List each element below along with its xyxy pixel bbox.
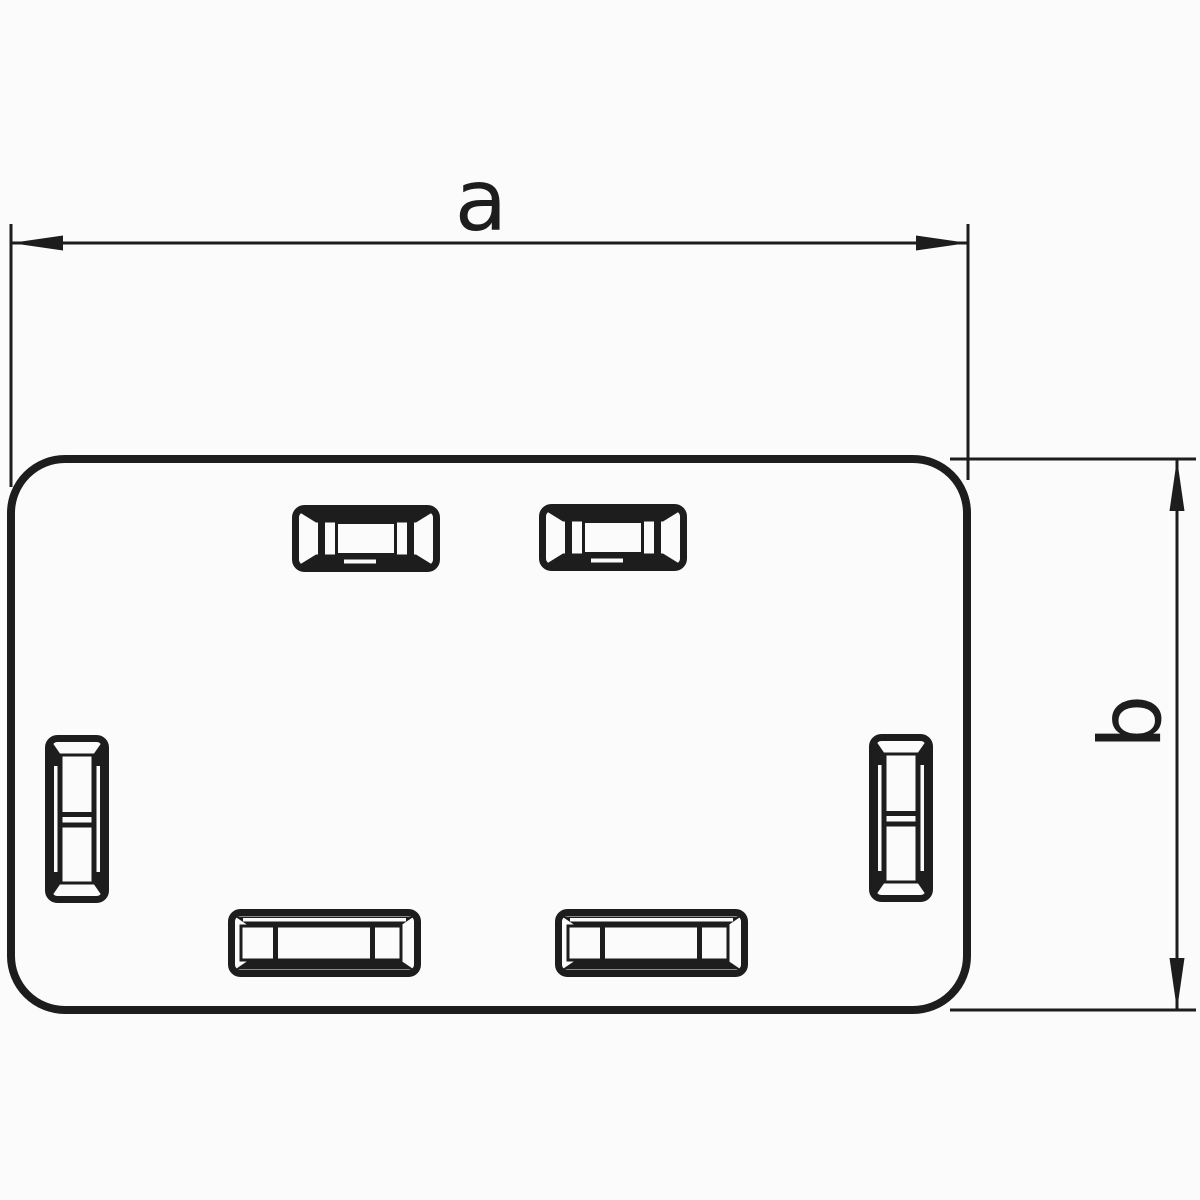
dimension-a-label: a (455, 151, 508, 251)
end-plate-body (11, 459, 967, 1010)
dim-a-arrowhead-right-icon (916, 236, 968, 251)
drawing-page: a b (0, 0, 1200, 1200)
slot-top-right (543, 508, 684, 568)
dim-b-arrowhead-bottom-icon (1170, 958, 1185, 1010)
dimension-b-label: b (1081, 695, 1181, 750)
slot-bottom-left (232, 913, 418, 974)
part-outline (11, 459, 967, 1010)
slot-bottom-right (559, 913, 745, 974)
dimension-a (11, 224, 968, 487)
dim-a-arrowhead-left-icon (11, 236, 63, 251)
slot-left (49, 739, 106, 900)
slot-right (873, 738, 930, 899)
technical-drawing-canvas: a b (0, 0, 1200, 1200)
slot-top-left (296, 509, 437, 569)
dim-b-arrowhead-top-icon (1170, 459, 1185, 511)
